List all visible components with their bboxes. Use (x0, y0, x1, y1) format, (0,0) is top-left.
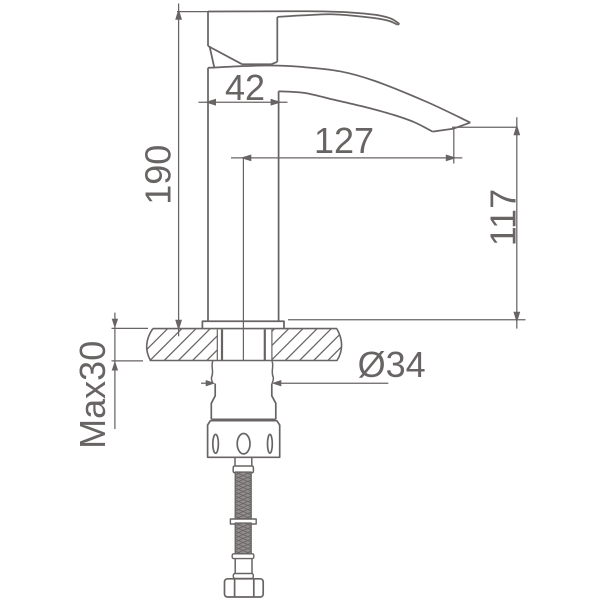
svg-text:117: 117 (483, 189, 524, 246)
svg-text:127: 127 (314, 120, 374, 161)
svg-text:42: 42 (225, 67, 265, 108)
svg-text:Ø34: Ø34 (358, 344, 426, 385)
svg-text:Max30: Max30 (72, 341, 113, 449)
svg-text:190: 190 (137, 145, 178, 205)
